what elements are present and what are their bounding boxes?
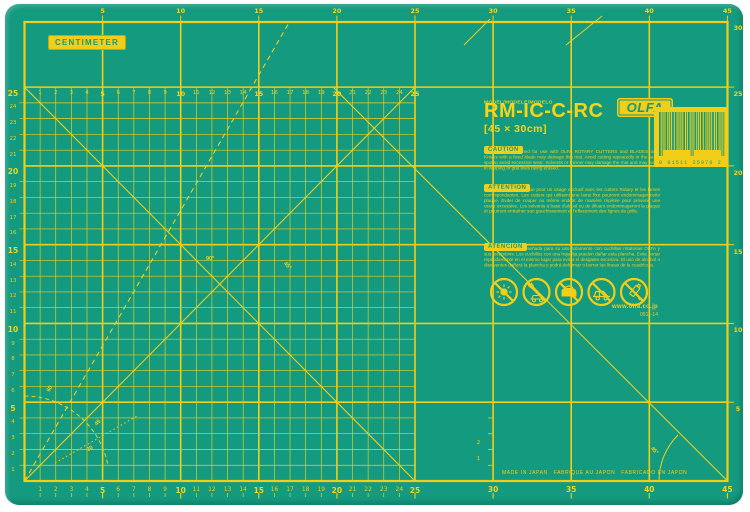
- ruler-number: 5: [100, 90, 105, 98]
- ruler-number: 22: [364, 486, 372, 493]
- ruler-number: 10: [733, 326, 742, 334]
- ruler-number: 16: [271, 90, 278, 96]
- ruler-number: 7: [11, 372, 15, 378]
- ruler-number: 4: [85, 486, 89, 493]
- ruler-number: 23: [10, 120, 17, 126]
- ruler-number: 23: [380, 90, 387, 96]
- ruler-number: 21: [349, 486, 357, 493]
- ruler-number: 35: [567, 7, 576, 15]
- ruler-number: 16: [271, 486, 279, 493]
- ruler-number: 21: [10, 152, 17, 158]
- ruler-number: 1: [11, 467, 15, 473]
- ruler-number: 1: [38, 90, 42, 96]
- ruler-number: 20: [332, 486, 342, 495]
- barcode: 0 91511 25076 2: [654, 107, 727, 167]
- ruler-number: 25: [410, 7, 419, 15]
- ruler-number: 24: [10, 104, 17, 110]
- ruler-number: 7: [132, 486, 136, 493]
- ruler-number: 10: [176, 7, 185, 15]
- ruler-number: 5: [100, 7, 105, 15]
- ruler-number: 6: [116, 486, 120, 493]
- ruler-number: 14: [239, 486, 247, 493]
- no-sunlight-icon: [491, 279, 517, 305]
- ruler-number: 25: [410, 486, 420, 495]
- barcode-digits: 0 91511 25076 2: [654, 160, 727, 166]
- ruler-number: 10: [8, 325, 18, 334]
- ruler-number: 30: [488, 485, 498, 494]
- ruler-number: 8: [148, 90, 152, 96]
- ruler-number: 24: [396, 90, 403, 96]
- ruler-number: 16: [10, 230, 17, 236]
- ruler-number: 8: [11, 356, 15, 362]
- mat-size: [45 × 30cm]: [484, 123, 547, 135]
- ruler-number: 15: [254, 7, 263, 15]
- no-iron-icon: [556, 279, 582, 305]
- ruler-number: 5: [10, 404, 15, 413]
- ruler-number: 14: [10, 262, 17, 268]
- made-in-footer: MADE IN JAPAN FABRIQUE AU JAPON FABRICAD…: [502, 470, 687, 476]
- model-number: RM-IC-C-RC: [484, 100, 603, 123]
- ruler-number: 35: [566, 485, 576, 494]
- ruler-number: 3: [69, 486, 73, 493]
- ruler-number: 30: [489, 7, 498, 15]
- website-url: www.olfa.co.jp: [548, 304, 658, 310]
- ruler-number: 21: [349, 90, 356, 96]
- ruler-number: 10: [175, 486, 185, 495]
- ruler-number: 12: [208, 486, 216, 493]
- ruler-number: 2: [11, 451, 15, 457]
- ruler-number: 11: [193, 90, 200, 96]
- ruler-number: 13: [10, 278, 17, 284]
- ruler-number: 20: [8, 167, 18, 176]
- ruler-number: 23: [380, 486, 388, 493]
- ruler-number: 18: [302, 90, 309, 96]
- product-photo: 5101520253035404512345678910111213141516…: [0, 0, 750, 512]
- ruler-number: 45: [722, 485, 732, 494]
- ruler-number: 30: [733, 24, 742, 32]
- ruler-number: 14: [240, 90, 247, 96]
- ruler-number: 20: [332, 7, 341, 15]
- barcode-bars: [654, 107, 727, 167]
- ruler-number: 1: [477, 456, 481, 462]
- ruler-number: 9: [163, 90, 167, 96]
- ruler-number: 19: [10, 183, 17, 189]
- ruler-number: 11: [192, 486, 200, 493]
- ruler-number: 17: [286, 486, 294, 493]
- ruler-number: 15: [254, 486, 264, 495]
- ruler-number: 24: [396, 486, 404, 493]
- ruler-number: 9: [11, 341, 15, 347]
- ruler-number: 10: [176, 90, 185, 98]
- ruler-number: 3: [11, 435, 15, 441]
- ruler-number: 19: [317, 486, 325, 493]
- ruler-number: 19: [318, 90, 325, 96]
- no-solvent-icon: [621, 279, 647, 305]
- ruler-number: 17: [287, 90, 294, 96]
- ruler-number: 18: [10, 199, 17, 205]
- caution-text: This mat is designed for use with OLFA R…: [484, 149, 660, 171]
- angle-90-label: 90°: [206, 256, 214, 262]
- attention-text: Cette plaque est conçue pour un usage ex…: [484, 187, 660, 214]
- ruler-number: 5: [100, 486, 105, 495]
- ruler-number: 2: [477, 440, 481, 446]
- ruler-number: 2: [54, 90, 58, 96]
- atencion-text: Esta plancha está diseñada para su uso s…: [484, 246, 660, 268]
- ruler-number: 13: [224, 486, 232, 493]
- ruler-number: 25: [410, 90, 419, 98]
- ruler-number: 1: [38, 486, 42, 493]
- product-code: 0511-14: [600, 312, 658, 318]
- ruler-number: 4: [85, 90, 89, 96]
- ruler-number: 40: [644, 485, 654, 494]
- no-hot-car-icon: [524, 279, 550, 305]
- ruler-number: 4: [11, 419, 15, 425]
- ruler-number: 12: [10, 293, 17, 299]
- ruler-number: 13: [224, 90, 231, 96]
- ruler-number: 25: [8, 89, 18, 98]
- ruler-number: 6: [116, 90, 120, 96]
- ruler-number: 15: [8, 246, 18, 255]
- ruler-number: 20: [332, 90, 341, 98]
- ruler-number: 5: [736, 405, 741, 413]
- ruler-number: 11: [10, 309, 17, 315]
- ruler-number: 22: [10, 136, 17, 142]
- ruler-number: 22: [365, 90, 372, 96]
- ruler-number: 7: [132, 90, 136, 96]
- ruler-number: 40: [645, 7, 654, 15]
- no-car-window-icon: [589, 279, 615, 305]
- ruler-number: 18: [302, 486, 310, 493]
- ruler-number: 15: [254, 90, 263, 98]
- ruler-number: 17: [10, 215, 17, 221]
- ruler-number: 6: [11, 388, 15, 394]
- ruler-number: 3: [70, 90, 74, 96]
- ruler-number: 8: [148, 486, 152, 493]
- centimeter-tag: CENTIMETER: [48, 35, 126, 50]
- ruler-number: 9: [163, 486, 167, 493]
- ruler-number: 2: [54, 486, 58, 493]
- ruler-number: 25: [733, 90, 742, 98]
- ruler-number: 12: [208, 90, 215, 96]
- ruler-number: 45: [723, 7, 732, 15]
